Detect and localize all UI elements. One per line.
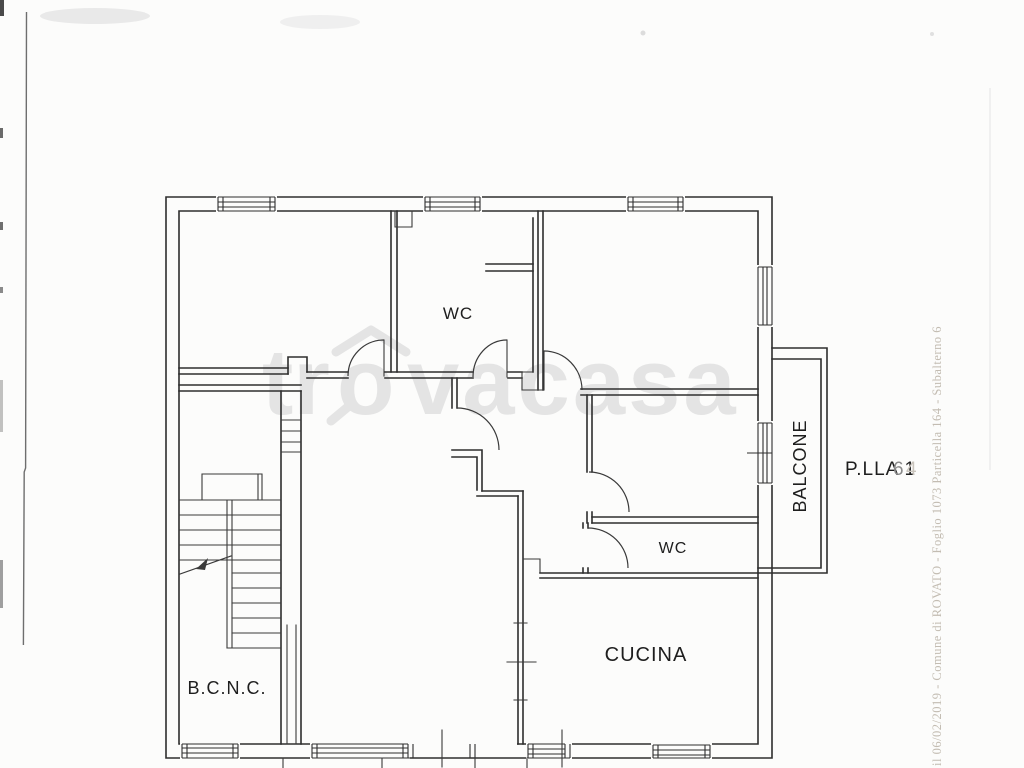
label-common-area: B.C.N.C. (187, 678, 266, 698)
watermark-text-tr: tr (262, 329, 330, 434)
scan-line-left (23, 12, 26, 645)
scan-smudge (280, 15, 360, 29)
edge-mark (0, 287, 3, 293)
edge-mark (0, 128, 3, 138)
margin-note-text: il 06/02/2019 - Comune di ROVATO - Fogli… (930, 326, 944, 766)
label-parcel-digit-mid: 6 (893, 459, 905, 480)
label-parcel-digit-faint: 4 (906, 459, 918, 480)
label-wc-lower: WC (659, 540, 688, 557)
scan-artifacts (0, 0, 990, 645)
outer-walls (166, 197, 772, 758)
scanned-floorplan-page: tr o vacasa (0, 0, 1024, 768)
label-wc-upper: WC (443, 304, 473, 323)
edge-mark (0, 222, 3, 230)
scan-smudge (40, 8, 150, 24)
door-arc-wc-lower (588, 528, 628, 568)
edge-mark (0, 380, 3, 432)
scan-dot (641, 31, 646, 36)
edge-mark (0, 0, 4, 16)
stairs-group (179, 474, 281, 648)
watermark: tr o vacasa (262, 329, 739, 434)
floor-plan-svg: tr o vacasa (0, 0, 1024, 768)
edge-mark (0, 560, 3, 608)
door-arc-middle-right-room (589, 472, 629, 512)
scan-dot (930, 32, 934, 36)
label-balcony: BALCONE (790, 419, 810, 512)
label-kitchen: CUCINA (605, 644, 688, 666)
